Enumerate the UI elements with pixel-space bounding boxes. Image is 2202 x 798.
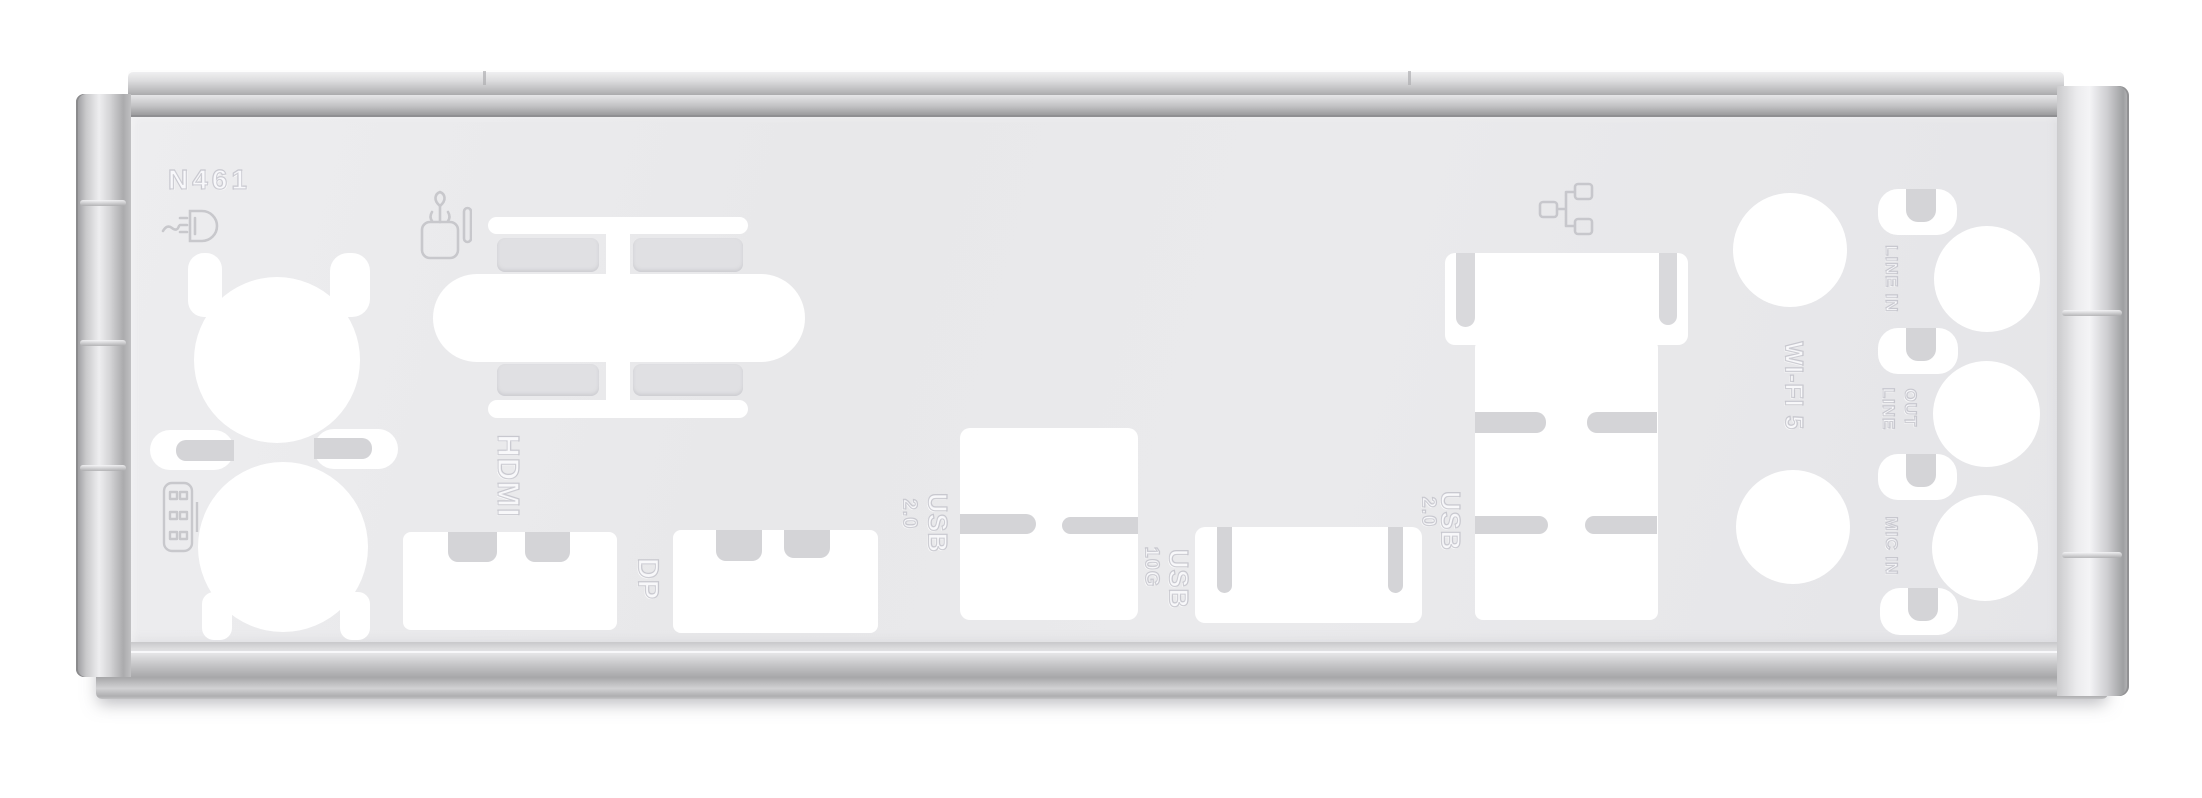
knockout-channel xyxy=(606,356,630,406)
legacy-capsule-knockout xyxy=(433,274,805,362)
bent-finger xyxy=(1475,516,1548,534)
dp-label: DP xyxy=(631,558,664,600)
usb2-tower-cutout xyxy=(1475,340,1658,620)
usb2-left-label: USB xyxy=(922,493,953,553)
flange-ridge xyxy=(2062,552,2122,558)
usb-10g-label: USB xyxy=(1163,549,1194,609)
bent-tab xyxy=(448,532,497,562)
hdmi-label: HDMI xyxy=(490,434,526,517)
usb-10g-speed-label: 10G xyxy=(1140,547,1163,588)
lan-port-cutout xyxy=(1445,253,1688,345)
bent-tongue xyxy=(633,364,743,396)
bent-tab xyxy=(1906,189,1936,222)
bent-tab xyxy=(784,530,830,558)
dvi-port-icon xyxy=(160,203,224,249)
audio-jack-line-in-hole xyxy=(1934,226,2040,332)
bent-tongue xyxy=(497,238,599,272)
bent-tongue xyxy=(633,238,743,272)
line-out-label-word2: OUT xyxy=(1900,389,1920,428)
bent-tab xyxy=(1906,328,1936,361)
bent-hook xyxy=(1659,253,1677,325)
ethernet-lan-icon xyxy=(1538,182,1596,236)
spring-slot xyxy=(340,592,370,640)
hdmi-port-cutout xyxy=(403,532,617,630)
bent-finger xyxy=(1062,517,1138,534)
mic-in-label: MIC IN xyxy=(1881,517,1901,576)
wifi-antenna-hole-top xyxy=(1733,193,1847,307)
flange-ridge xyxy=(80,200,126,206)
usb2-right-version-label: 2.0 xyxy=(1417,497,1440,528)
displayport-cutout xyxy=(673,530,878,633)
wifi-label: WI-FI 5 xyxy=(1779,342,1808,431)
audio-jack-line-out-hole xyxy=(1933,361,2040,467)
bent-finger xyxy=(1587,412,1657,433)
bent-tongue xyxy=(497,364,599,396)
knockout-channel xyxy=(606,226,630,278)
bent-tab xyxy=(314,438,372,459)
io-shield-product-photo: N461 HDMI DP USB 2.0 USB 10G USB 2.0 WI-… xyxy=(0,0,2202,798)
bent-finger xyxy=(1585,516,1657,534)
bent-tab xyxy=(1906,454,1936,487)
bottom-flange-band xyxy=(96,651,2108,699)
knockout-slot-bottom xyxy=(488,400,748,418)
bent-finger xyxy=(1217,527,1232,593)
bent-finger xyxy=(960,514,1036,534)
line-out-label-word1: LINE xyxy=(1878,388,1898,431)
flange-seam xyxy=(483,71,486,85)
left-flange xyxy=(76,94,131,677)
line-in-label: LINE IN xyxy=(1881,245,1901,312)
pin-header-icon xyxy=(161,480,201,554)
spdif-optical-icon xyxy=(418,190,472,264)
bent-finger xyxy=(1475,412,1546,433)
right-flange xyxy=(2057,86,2129,696)
usb2-left-version-label: 2.0 xyxy=(898,499,921,530)
flange-seam xyxy=(1408,71,1411,85)
flange-ridge xyxy=(80,465,126,471)
part-number-label: N461 xyxy=(168,164,251,196)
wifi-antenna-hole-bottom xyxy=(1736,470,1850,584)
top-flange-lip xyxy=(128,70,2064,97)
bent-tab xyxy=(716,530,762,561)
flange-ridge xyxy=(2062,310,2122,316)
audio-jack-mic-in-hole xyxy=(1932,495,2038,601)
bent-finger xyxy=(1388,527,1403,593)
top-flange-band xyxy=(107,95,2097,117)
bent-tab xyxy=(525,532,570,562)
spring-slot xyxy=(202,592,232,640)
round-port-hole-upper-left xyxy=(194,277,360,443)
bent-tab xyxy=(1908,588,1938,621)
bent-hook xyxy=(1456,253,1475,327)
bent-tab xyxy=(176,440,234,461)
flange-ridge xyxy=(80,340,126,346)
